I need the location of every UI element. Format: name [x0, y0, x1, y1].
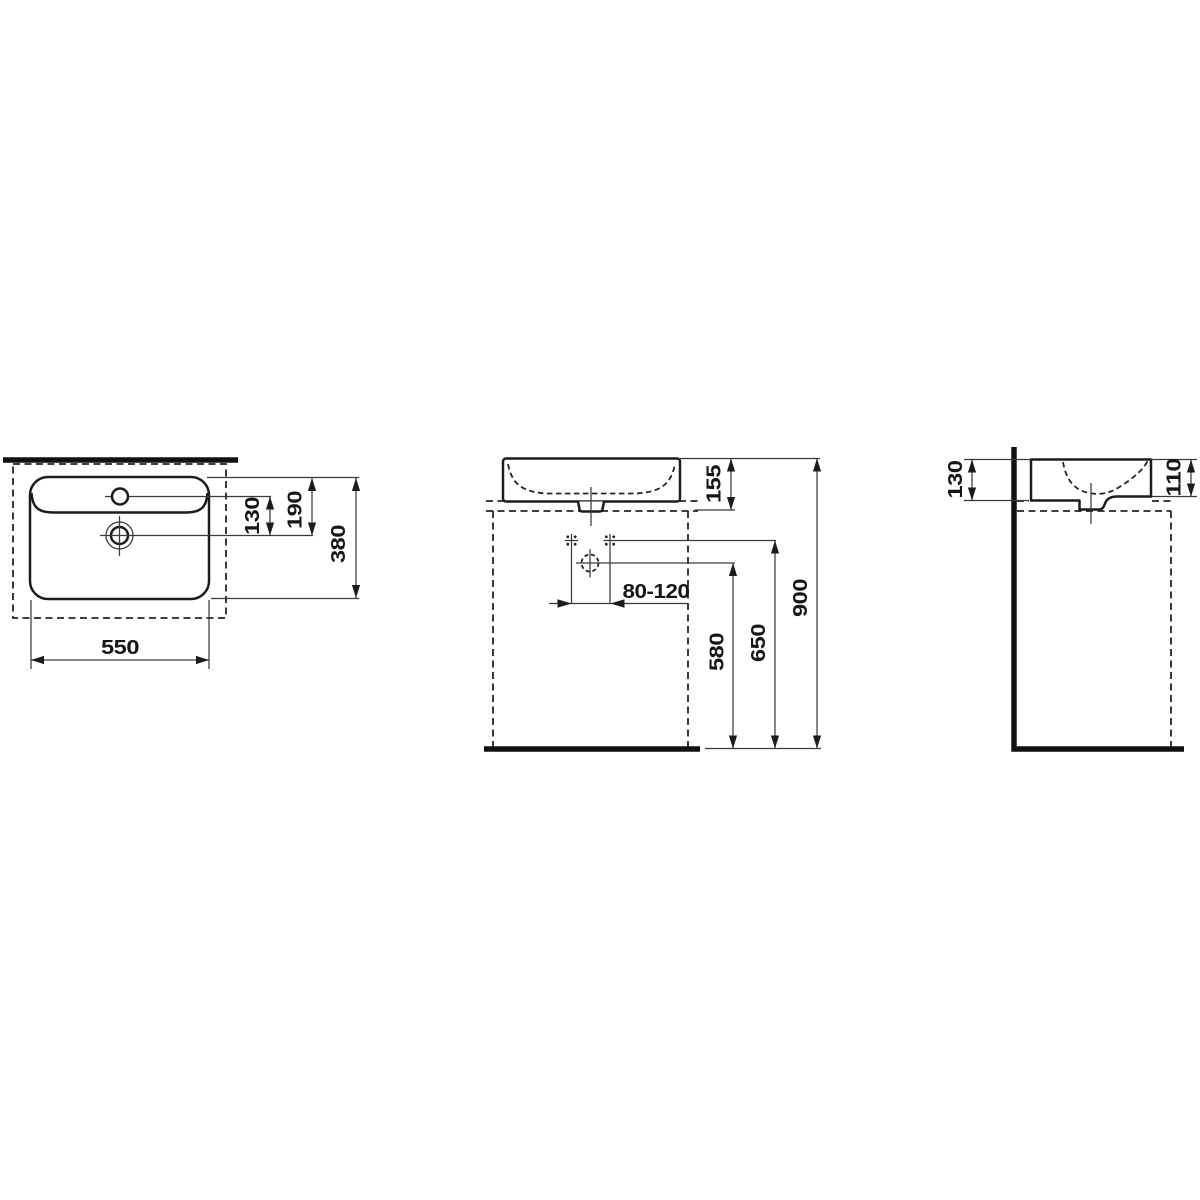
- dimension-rim-height: 900: [790, 459, 821, 749]
- cross-dot: [605, 543, 608, 546]
- arrowhead-icon: [196, 656, 209, 664]
- dimension-basin-height: 155: [695, 459, 735, 511]
- arrowhead-icon: [352, 478, 360, 491]
- dimension-depth: 380: [328, 478, 360, 598]
- side-view: 130 110: [945, 447, 1197, 752]
- technical-drawing: 130 190 380 550: [0, 0, 1200, 1200]
- arrowhead-icon: [266, 523, 274, 536]
- arrowhead-icon: [1187, 460, 1195, 473]
- drawing-canvas: 130 190 380 550: [0, 0, 1200, 1200]
- dim-label-tap-to-drain: 130: [242, 497, 264, 535]
- dim-label-basin-height: 155: [704, 465, 726, 503]
- arrowhead-icon: [968, 488, 976, 501]
- cross-dot: [612, 543, 615, 546]
- water-connection-left-icon: [565, 534, 578, 547]
- arrowhead-icon: [729, 563, 737, 576]
- dim-label-rim-to-drain: 190: [285, 491, 307, 529]
- cross-dot: [566, 543, 569, 546]
- cross-dot: [574, 543, 577, 546]
- arrowhead-icon: [1187, 484, 1195, 497]
- cross-dot: [574, 535, 577, 538]
- front-view: 80-120 155 580 650: [484, 459, 821, 750]
- arrowhead-icon: [266, 497, 274, 510]
- dimension-connection-height: 650: [748, 541, 779, 749]
- arrowhead-icon: [771, 541, 779, 554]
- dimension-faucet-offset: 80-120: [549, 547, 690, 608]
- dim-label-back-height: 130: [945, 460, 967, 498]
- dim-label-connection-height: 650: [748, 624, 770, 662]
- arrowhead-icon: [308, 523, 316, 536]
- dimension-width: 550: [31, 600, 209, 669]
- tap-hole: [112, 489, 128, 505]
- arrowhead-icon: [308, 478, 316, 491]
- arrowhead-icon: [813, 459, 821, 472]
- dimension-back-height: 130: [945, 460, 1031, 501]
- cross-dot: [605, 535, 608, 538]
- dimension-front-height: 110: [1151, 458, 1197, 496]
- dimension-drain-height: 580: [707, 563, 738, 749]
- dimension-tap-to-drain: 130: [242, 497, 274, 536]
- arrowhead-icon: [727, 497, 735, 510]
- dim-label-width: 550: [101, 637, 139, 659]
- dim-label-depth: 380: [328, 525, 350, 563]
- cross-dot: [566, 535, 569, 538]
- arrowhead-icon: [558, 599, 572, 607]
- arrowhead-icon: [31, 656, 44, 664]
- arrowhead-icon: [727, 459, 735, 472]
- arrowhead-icon: [729, 736, 737, 749]
- cross-dot: [612, 535, 615, 538]
- arrowhead-icon: [813, 736, 821, 749]
- water-connection-right-icon: [604, 534, 617, 547]
- dim-label-front-height: 110: [1164, 458, 1186, 496]
- dim-label-drain-height: 580: [707, 633, 729, 671]
- arrowhead-icon: [771, 736, 779, 749]
- arrowhead-icon: [968, 460, 976, 473]
- arrowhead-icon: [352, 585, 360, 598]
- dim-label-rim-height: 900: [790, 579, 812, 617]
- waste-outlet-icon: [576, 549, 735, 578]
- dimension-rim-to-drain: 190: [285, 478, 317, 536]
- dim-label-faucet-offset: 80-120: [623, 581, 690, 603]
- top-view: 130 190 380 550: [3, 460, 360, 669]
